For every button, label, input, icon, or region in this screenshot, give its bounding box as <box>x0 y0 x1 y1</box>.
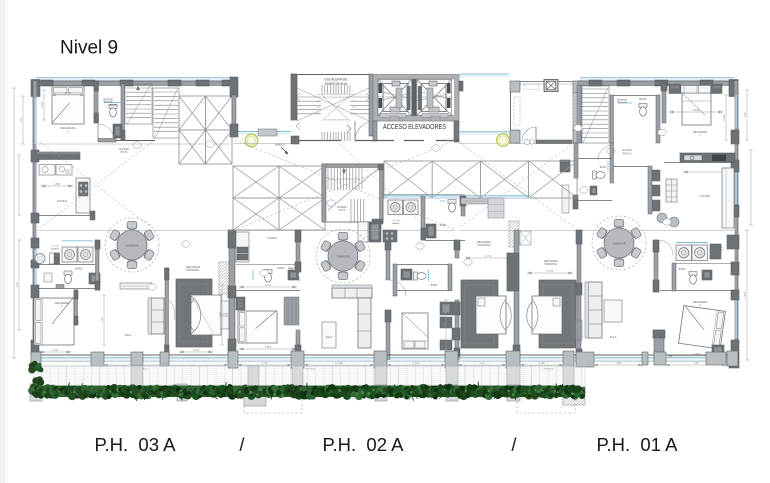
svg-text:PH 02: PH 02 <box>339 210 346 212</box>
svg-text:Nivel 9: Nivel 9 <box>60 38 118 59</box>
svg-text:11.400: 11.400 <box>335 361 343 365</box>
svg-text:PRINCIPAL: PRINCIPAL <box>186 269 200 272</box>
svg-text:2.400: 2.400 <box>163 361 170 365</box>
svg-text:2.700: 2.700 <box>485 254 492 258</box>
svg-text:BAÑO: BAÑO <box>440 224 447 227</box>
svg-text:1.905: 1.905 <box>218 311 222 318</box>
svg-text:PRINCIPAL: PRINCIPAL <box>544 263 558 266</box>
svg-text:P.H. 03 A: P.H. 03 A <box>95 434 177 455</box>
svg-text:RECAMARA: RECAMARA <box>60 126 75 130</box>
svg-text:ACCESO ELEVADORES: ACCESO ELEVADORES <box>383 124 446 131</box>
svg-text:BAÑO: BAÑO <box>639 98 646 101</box>
svg-text:2.700: 2.700 <box>547 269 554 273</box>
svg-text:2.400: 2.400 <box>413 361 420 365</box>
svg-text:PH 03: PH 03 <box>121 151 128 154</box>
svg-text:3.400: 3.400 <box>265 283 272 287</box>
svg-text:1.500: 1.500 <box>40 101 44 108</box>
svg-text:CL. DE: CL. DE <box>392 220 400 222</box>
svg-text:2.400: 2.400 <box>538 361 545 365</box>
svg-text:1.80B: 1.80B <box>693 108 700 112</box>
svg-text:COCINA: COCINA <box>700 194 711 198</box>
svg-text:COCINA: COCINA <box>57 199 68 203</box>
svg-text:1.85: 1.85 <box>743 112 747 118</box>
svg-text:BAÑO: BAÑO <box>600 166 607 169</box>
svg-text:BAÑO: BAÑO <box>109 104 116 107</box>
svg-text:SALA: SALA <box>326 336 333 339</box>
svg-text:1.90: 1.90 <box>100 317 104 323</box>
svg-text:ACCESO: ACCESO <box>337 206 347 209</box>
svg-text:1.700: 1.700 <box>52 348 59 352</box>
svg-text:BAÑO: BAÑO <box>679 268 686 271</box>
svg-text:PH 01 A: PH 01 A <box>623 152 632 155</box>
svg-text:/: / <box>239 434 245 455</box>
svg-text:NIVEL 9: NIVEL 9 <box>275 143 285 147</box>
svg-text:2.40: 2.40 <box>479 361 485 365</box>
svg-text:SALA: SALA <box>125 333 132 337</box>
svg-text:200 DESCANSO ELEVACION: 200 DESCANSO ELEVACION <box>324 119 349 122</box>
svg-text:SALA: SALA <box>610 335 617 339</box>
svg-text:1.800: 1.800 <box>54 182 61 186</box>
svg-text:1.4B: 1.4B <box>615 361 621 365</box>
svg-text:/: / <box>511 434 517 455</box>
svg-text:1.50: 1.50 <box>19 117 23 123</box>
svg-text:LAVADO: LAVADO <box>51 248 60 251</box>
svg-text:PRINCIPAL: PRINCIPAL <box>477 244 491 247</box>
svg-text:1.800: 1.800 <box>442 321 446 328</box>
svg-text:P.H. 02 A: P.H. 02 A <box>323 434 405 455</box>
svg-text:COCINA: COCINA <box>267 237 277 240</box>
svg-text:COMEDOR: COMEDOR <box>125 245 138 248</box>
svg-text:3.200: 3.200 <box>193 348 200 352</box>
svg-text:ESCALERA DE: ESCALERA DE <box>325 78 349 82</box>
svg-text:COMEDOR: COMEDOR <box>612 243 625 246</box>
svg-text:3.000: 3.000 <box>65 91 72 95</box>
svg-text:LAVADO: LAVADO <box>392 222 401 225</box>
svg-text:2.400: 2.400 <box>261 361 268 365</box>
svg-text:BAÑO: BAÑO <box>75 268 82 271</box>
svg-text:P.H. 01 A: P.H. 01 A <box>597 434 679 455</box>
svg-text:2.503: 2.503 <box>722 114 726 121</box>
svg-text:BAÑO: BAÑO <box>278 267 285 270</box>
svg-text:2.800: 2.800 <box>265 345 272 349</box>
svg-text:2.1B: 2.1B <box>693 361 699 365</box>
svg-text:BAÑO: BAÑO <box>431 284 438 287</box>
svg-text:CL. DE: CL. DE <box>51 246 59 248</box>
svg-text:COMEDOR: COMEDOR <box>336 256 349 259</box>
svg-text:1.50: 1.50 <box>15 282 19 288</box>
svg-text:2.003: 2.003 <box>743 291 747 298</box>
